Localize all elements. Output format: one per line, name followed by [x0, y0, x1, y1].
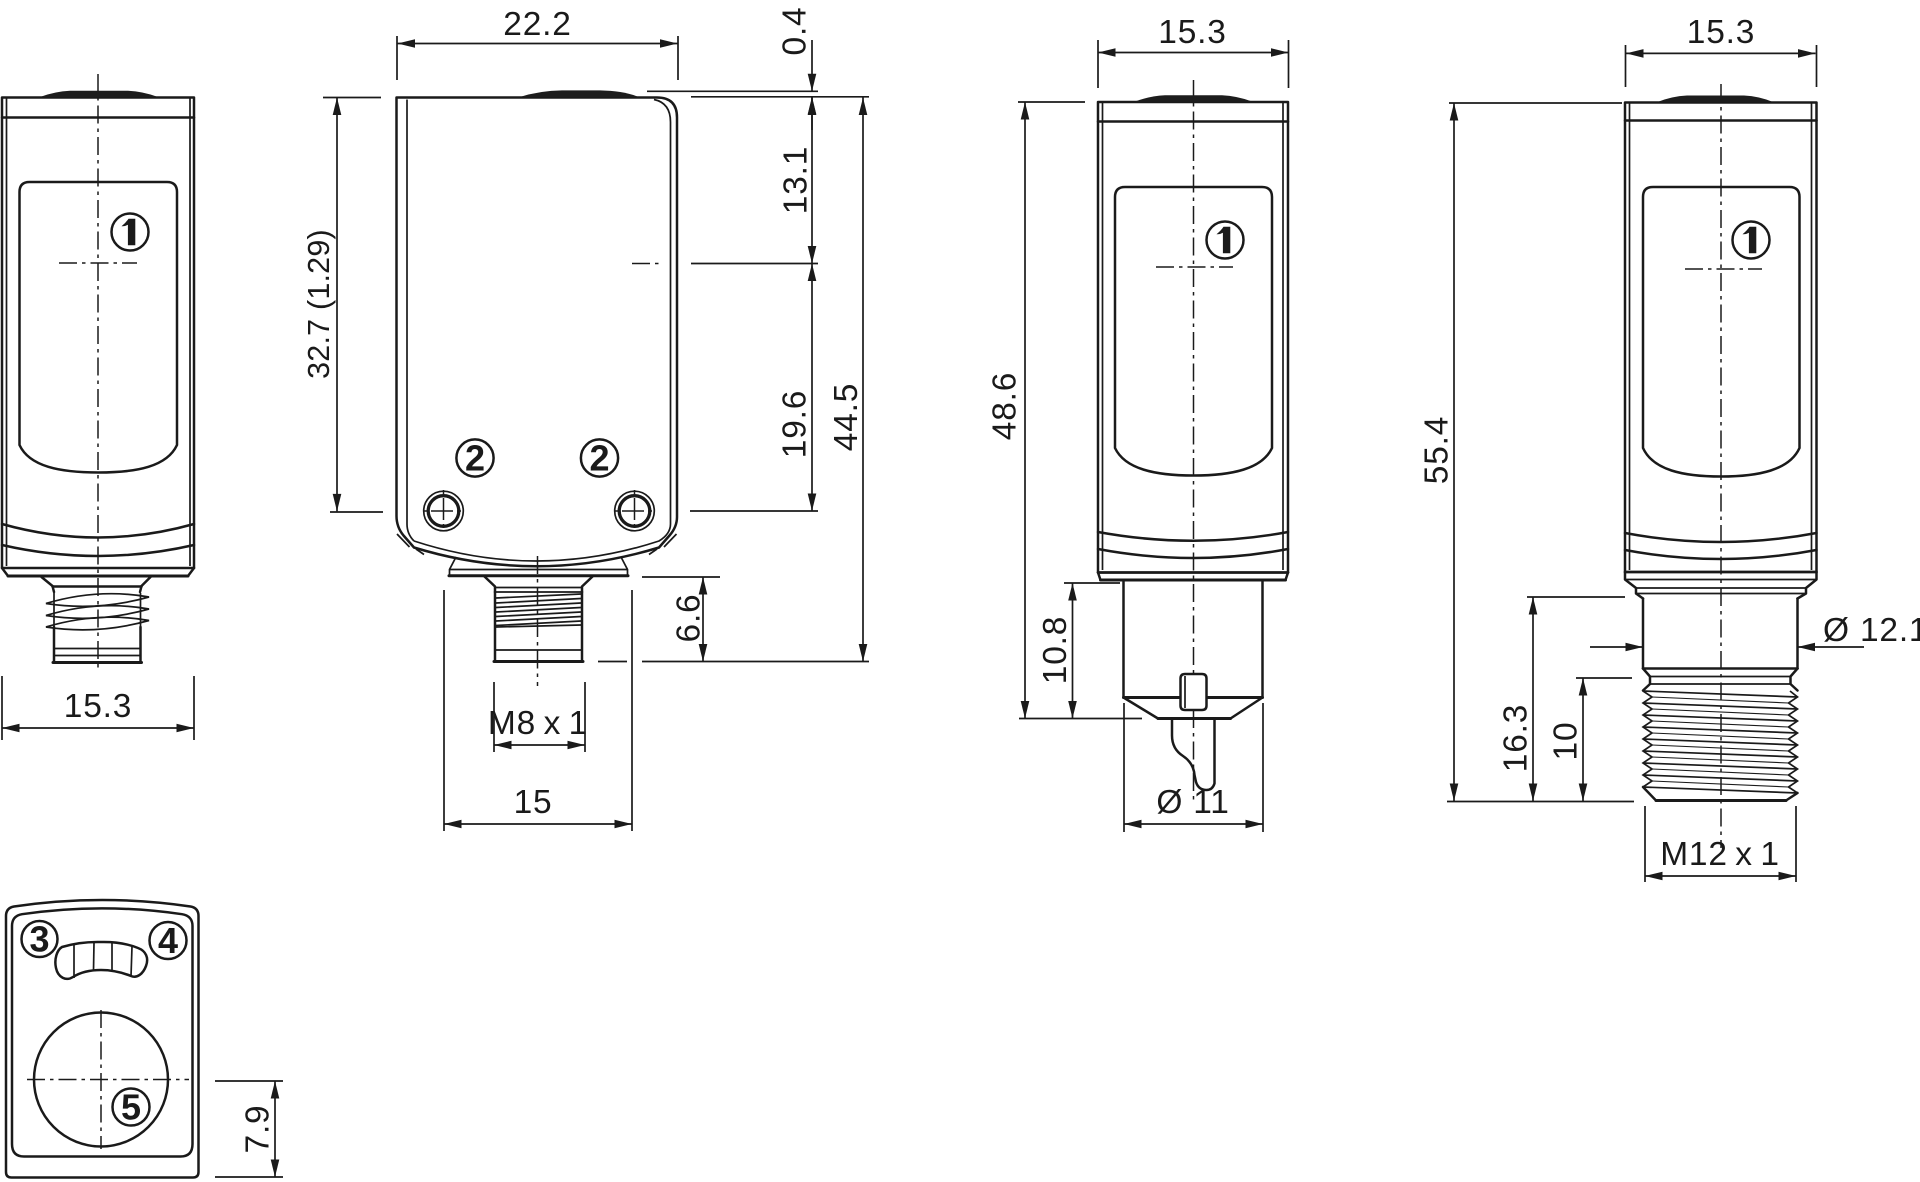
svg-text:7.9: 7.9 — [240, 1105, 277, 1154]
svg-text:2: 2 — [589, 438, 609, 479]
svg-text:19.6: 19.6 — [777, 390, 814, 458]
svg-text:16.3: 16.3 — [1498, 704, 1535, 772]
svg-text:10: 10 — [1548, 722, 1585, 761]
svg-text:22.2: 22.2 — [503, 6, 571, 43]
svg-text:15: 15 — [514, 784, 553, 821]
svg-text:13.1: 13.1 — [778, 146, 815, 214]
svg-text:M8 x 1: M8 x 1 — [488, 705, 588, 742]
svg-text:4: 4 — [158, 920, 178, 961]
svg-text:2: 2 — [465, 438, 485, 479]
svg-text:Ø 12.1: Ø 12.1 — [1823, 612, 1920, 649]
svg-text:5: 5 — [121, 1087, 141, 1128]
svg-text:44.5: 44.5 — [828, 383, 865, 451]
svg-text:48.6: 48.6 — [987, 372, 1024, 440]
svg-text:6.6: 6.6 — [671, 594, 708, 643]
svg-text:15.3: 15.3 — [1687, 14, 1755, 51]
svg-text:M12 x 1: M12 x 1 — [1660, 836, 1780, 873]
svg-text:55.4: 55.4 — [1419, 416, 1456, 484]
svg-text:Ø 11: Ø 11 — [1156, 784, 1229, 821]
svg-text:0.4: 0.4 — [777, 7, 814, 56]
svg-text:10.8: 10.8 — [1037, 616, 1074, 684]
svg-text:3: 3 — [29, 919, 49, 960]
svg-text:32.7 (1.29): 32.7 (1.29) — [302, 229, 336, 379]
svg-text:15.3: 15.3 — [1158, 14, 1226, 51]
svg-text:15.3: 15.3 — [64, 688, 132, 725]
